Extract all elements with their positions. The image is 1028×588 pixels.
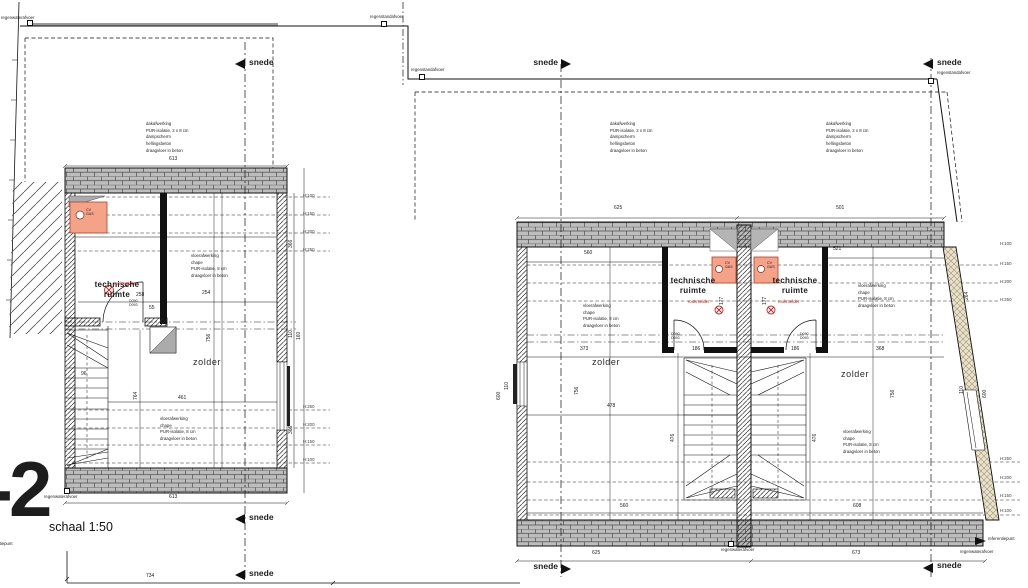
dim: 160 <box>296 332 303 340</box>
dim: 608 <box>853 503 861 510</box>
dim: 461 <box>178 395 186 402</box>
dim: 673 <box>852 550 860 557</box>
section-label: snede <box>526 57 558 68</box>
section-arrow <box>235 59 245 69</box>
tech-wall-bottom-left <box>704 347 737 353</box>
section-label: snede <box>526 561 558 572</box>
drain-marker <box>728 541 734 547</box>
drain-marker <box>419 74 425 80</box>
section-label: snede <box>937 57 962 68</box>
dim: 110 <box>504 382 511 390</box>
wall-tech-horizontal-a <box>65 318 100 326</box>
wall-tech-horizontal-b <box>145 318 167 326</box>
dim: 110 <box>288 330 295 338</box>
drain-label: regenstandafvoer <box>411 67 444 73</box>
tech-wall-left <box>662 247 668 353</box>
gas-unit-label: CV GAS <box>767 261 775 270</box>
dim: 186 <box>692 346 700 353</box>
wall-right-upper <box>277 193 287 362</box>
dim: 373 <box>580 346 588 353</box>
dim: 55 <box>149 305 155 312</box>
ridge-line-right <box>527 335 943 342</box>
dim: 625 <box>592 550 600 557</box>
window-left-right-plan <box>513 362 527 406</box>
roof-buildup-note: dakafwerking PUR-isolatie, 2 x 8 cm damp… <box>146 121 189 154</box>
dim: 96 <box>81 371 87 378</box>
drain-label: regenwaterafvoer <box>721 547 754 553</box>
floor-buildup-note: vloerafwerking chape PUR-isolatie, 8 cm … <box>858 283 895 310</box>
drain-marker <box>928 78 934 84</box>
door-code-label: D090 D093 <box>129 299 138 308</box>
dim: 600 <box>496 392 503 400</box>
dim: 366 <box>288 240 295 248</box>
tech-wall-bottom-right <box>751 347 784 353</box>
wall-tech-vertical <box>160 193 167 324</box>
height-label: H:200 <box>1000 279 1011 285</box>
height-label: H:200 <box>1000 475 1011 481</box>
height-label: H:100 <box>1000 508 1011 514</box>
smoke-detector-label: rookmelder <box>778 299 800 305</box>
door-code-label: D090 D093 <box>800 332 809 341</box>
dim: 258 <box>136 292 144 299</box>
height-label: H:150 <box>303 211 314 217</box>
section-arrow <box>923 563 933 573</box>
drain-label: regenstandafvoer <box>370 14 403 20</box>
height-label: H:200 <box>303 229 314 235</box>
height-label: H:200 <box>303 422 314 428</box>
drain-label: regenwaterafvoer <box>44 494 77 500</box>
room-label-zolder: zolder <box>193 357 221 369</box>
dim: 177 <box>762 297 769 305</box>
height-label: H:100 <box>1000 241 1011 247</box>
smoke-detector-symbol-left <box>715 306 723 314</box>
smoke-detector-symbol-right <box>767 306 775 314</box>
drain-marker <box>381 21 387 27</box>
drain-marker <box>27 20 33 26</box>
section-arrow <box>235 570 245 580</box>
room-label-zolder: zolder <box>841 369 869 381</box>
dim: 366 <box>288 426 295 434</box>
height-label: H:100 <box>303 193 314 199</box>
dim: 560 <box>620 503 628 510</box>
dim: 478 <box>607 403 615 410</box>
dim: 756 <box>206 334 213 342</box>
neighbour-hatch <box>9 182 62 334</box>
wall-right-lower <box>277 430 287 468</box>
scale-label: schaal 1:50 <box>49 519 113 535</box>
section-label: snede <box>249 512 274 523</box>
section-arrow <box>561 564 571 574</box>
wall-slanted-right <box>943 247 999 520</box>
dim: 476 <box>670 434 677 442</box>
roof-band-top <box>65 168 287 193</box>
roof-window-square <box>150 327 176 353</box>
reference-point-label: referentiepunt <box>0 541 13 547</box>
height-label: H:100 <box>303 457 314 463</box>
tech-wall-right <box>822 247 828 353</box>
dim: 560 <box>584 250 592 257</box>
dim: 613 <box>169 494 177 501</box>
reference-point-label: referentiepunt <box>988 536 1015 542</box>
dim: 476 <box>812 434 819 442</box>
dim: 177 <box>719 297 726 305</box>
floor-buildup-note: vloerafwerking chape PUR-isolatie, 8 cm … <box>843 429 880 456</box>
floorplan-sheet: regenwaterafvoer dakafwerking PUR-isolat… <box>0 0 1028 588</box>
height-label: H:150 <box>1000 261 1011 267</box>
height-label: H:150 <box>1000 493 1011 499</box>
floor-buildup-note: vloerafwerking chape PUR-isolatie, 8 cm … <box>160 416 197 443</box>
drain-label: regenwaterafvoer <box>960 549 993 555</box>
floor-buildup-note: vloerafwerking chape PUR-isolatie, 8 cm … <box>583 303 620 330</box>
dim: 110 <box>959 386 966 394</box>
gas-boiler-unit <box>70 202 107 233</box>
door-code-label: D090 D093 <box>671 332 680 341</box>
dim: 734 <box>146 573 154 580</box>
dim: 764 <box>133 392 140 400</box>
wall-left <box>65 193 75 468</box>
roof-band-bottom <box>65 468 287 493</box>
room-label-technische-ruimte: technische ruimte <box>662 276 724 297</box>
dim: 254 <box>202 290 210 297</box>
dim: 625 <box>614 205 622 212</box>
height-label: H:250 <box>1000 297 1011 303</box>
dim: 501 <box>836 205 844 212</box>
dim: 600 <box>982 390 989 398</box>
dim: 368 <box>876 346 884 353</box>
smoke-detector-label: rookmelder <box>114 281 136 287</box>
dim: 613 <box>169 156 177 163</box>
smoke-detector-label: rookmelder <box>688 299 710 305</box>
window-right <box>277 362 290 430</box>
drain-label: regenstandafvoer <box>937 70 970 76</box>
dim: 756 <box>574 387 581 395</box>
roof-buildup-note: dakafwerking PUR-isolatie, 2 x 8 cm damp… <box>826 121 869 154</box>
party-wall <box>737 225 751 547</box>
height-label: H:250 <box>1000 456 1011 462</box>
roof-buildup-note: dakafwerking PUR-isolatie, 2 x 8 cm damp… <box>610 121 653 154</box>
dim: 186 <box>791 346 799 353</box>
gas-unit-label: CV GAS <box>725 261 733 270</box>
gas-unit-label: CV GAS <box>86 208 94 217</box>
drawing-level-number: -2 <box>0 458 48 520</box>
height-label: H:250 <box>303 404 314 410</box>
drain-marker <box>64 488 70 494</box>
section-arrow <box>923 59 933 69</box>
height-label: H:250 <box>303 247 314 253</box>
section-label: snede <box>937 560 962 571</box>
floor-buildup-note: vloerafwerking chape PUR-isolatie, 8 cm … <box>191 253 228 280</box>
section-label: snede <box>249 57 274 68</box>
dim: 521 <box>833 246 841 253</box>
section-arrow <box>561 59 571 69</box>
dim: 264 <box>964 292 971 300</box>
section-label: snede <box>249 568 274 579</box>
height-label: H:150 <box>303 439 314 445</box>
room-label-zolder: zolder <box>592 357 620 369</box>
section-arrow <box>235 514 245 524</box>
room-label-technische-ruimte: technische ruimte <box>764 276 826 297</box>
dim: 756 <box>890 390 897 398</box>
